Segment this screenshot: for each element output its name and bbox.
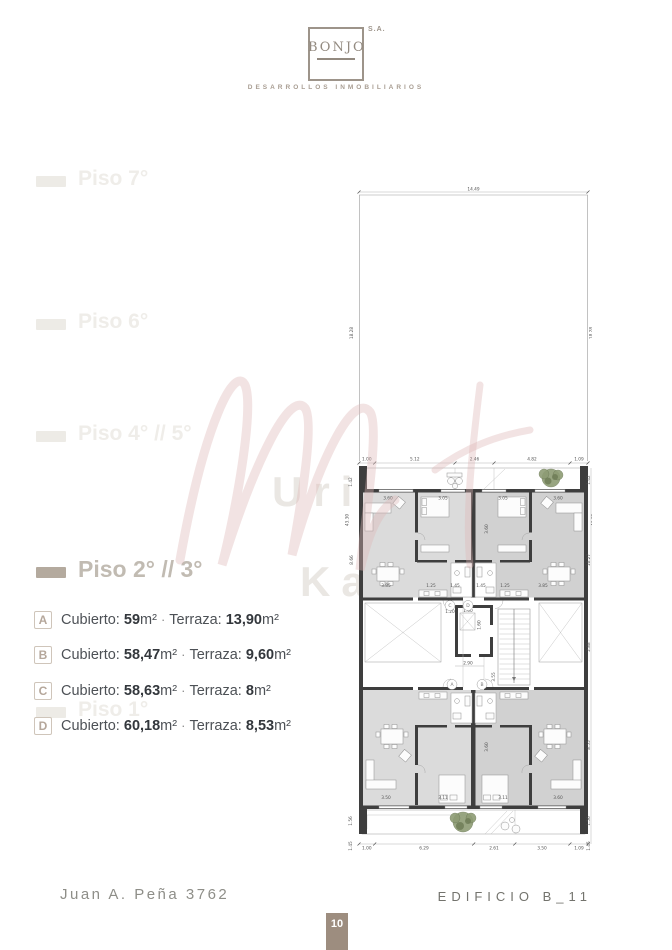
svg-text:3.60: 3.60 [484, 524, 490, 534]
unit-letter-badge: B [34, 646, 52, 664]
svg-text:1.25: 1.25 [500, 583, 510, 589]
unit-areas: Cubierto: 58,63m²·Terraza: 8m² [61, 683, 271, 699]
svg-text:3.50: 3.50 [537, 846, 547, 852]
logo-tagline: DESARROLLOS INMOBILIARIOS [0, 84, 672, 91]
svg-text:1.45: 1.45 [450, 583, 460, 589]
svg-text:1.00: 1.00 [362, 846, 372, 852]
svg-text:1.56: 1.56 [586, 816, 592, 826]
footer-address: Juan A. Peña 3762 [60, 886, 229, 903]
unit-row-d: D Cubierto: 60,18m²·Terraza: 8,53m² [34, 709, 291, 745]
svg-text:1.42: 1.42 [348, 477, 354, 487]
svg-text:43.30: 43.30 [345, 514, 351, 527]
svg-text:1.56: 1.56 [348, 816, 354, 826]
svg-text:1.09: 1.09 [574, 846, 584, 852]
logo-name: BONJO [308, 40, 364, 55]
svg-text:3.05: 3.05 [438, 496, 448, 502]
svg-text:18.28: 18.28 [589, 327, 593, 340]
svg-text:3.11: 3.11 [498, 795, 508, 801]
floor-bar-icon [36, 176, 66, 187]
floor-label: Piso 7° [78, 167, 148, 191]
svg-text:1.45: 1.45 [476, 583, 486, 589]
svg-text:2.46: 2.46 [470, 457, 480, 463]
svg-text:3.60: 3.60 [383, 496, 393, 502]
svg-text:1.60: 1.60 [477, 620, 483, 630]
svg-text:6.29: 6.29 [419, 846, 429, 852]
svg-text:2.88: 2.88 [586, 642, 592, 652]
unit-letter-badge: D [34, 717, 52, 735]
svg-text:4.82: 4.82 [527, 457, 537, 463]
svg-text:1.45: 1.45 [586, 841, 592, 851]
floor-bar-icon [36, 567, 66, 578]
svg-text:3.60: 3.60 [484, 742, 490, 752]
svg-text:10.27: 10.27 [586, 554, 592, 567]
unit-row-c: C Cubierto: 58,63m²·Terraza: 8m² [34, 673, 291, 709]
svg-text:3.55: 3.55 [491, 672, 497, 682]
unit-letter-badge: C [34, 682, 52, 700]
svg-text:8.55: 8.55 [586, 740, 592, 750]
unit-areas: Cubierto: 59m²·Terraza: 13,90m² [61, 612, 279, 628]
floor-label: Piso 6° [78, 310, 148, 334]
floor-label: Piso 2° // 3° [78, 556, 203, 583]
floor-plan-drawing: 14.49 18.28 18.28 1.00 5.12 2.46 4.82 1.… [345, 185, 592, 865]
svg-text:1.09: 1.09 [574, 457, 584, 463]
floor-bar-icon [36, 319, 66, 330]
svg-text:3.60: 3.60 [553, 795, 563, 801]
svg-text:14.49: 14.49 [467, 187, 480, 193]
svg-text:2.61: 2.61 [489, 846, 499, 852]
page: S.A. BONJO DESARROLLOS INMOBILIARIOS Uri… [0, 0, 672, 950]
svg-text:3.50: 3.50 [381, 795, 391, 801]
unit-letter-badge: A [34, 611, 52, 629]
logo-underline [317, 58, 355, 60]
svg-text:B: B [480, 682, 483, 688]
svg-text:3.05: 3.05 [498, 496, 508, 502]
svg-text:1.42: 1.42 [586, 475, 592, 485]
svg-text:3.85: 3.85 [381, 583, 391, 589]
svg-text:5.12: 5.12 [410, 457, 420, 463]
footer-building-label: EDIFICIO B_11 [438, 889, 592, 904]
svg-text:1.25: 1.25 [426, 583, 436, 589]
svg-text:3.11: 3.11 [438, 795, 448, 801]
page-number-tab: 10 [326, 913, 348, 950]
unit-areas: Cubierto: 58,47m²·Terraza: 9,60m² [61, 647, 291, 663]
unit-row-b: B Cubierto: 58,47m²·Terraza: 9,60m² [34, 638, 291, 674]
svg-text:3.85: 3.85 [538, 583, 548, 589]
svg-text:2.90: 2.90 [463, 661, 473, 667]
svg-text:D: D [466, 603, 470, 609]
svg-text:8.66: 8.66 [349, 555, 355, 565]
svg-text:C: C [448, 603, 451, 609]
floor-bar-icon [36, 431, 66, 442]
svg-text:18.28: 18.28 [349, 327, 355, 340]
floor-label: Piso 4° // 5° [78, 422, 192, 446]
unit-list: A Cubierto: 59m²·Terraza: 13,90m² B Cubi… [34, 602, 291, 744]
svg-text:1.00: 1.00 [362, 457, 372, 463]
unit-row-a: A Cubierto: 59m²·Terraza: 13,90m² [34, 602, 291, 638]
unit-areas: Cubierto: 60,18m²·Terraza: 8,53m² [61, 718, 291, 734]
logo-suffix: S.A. [368, 26, 386, 33]
svg-text:1.45: 1.45 [348, 841, 354, 851]
svg-text:43.30: 43.30 [591, 514, 593, 527]
svg-text:3.60: 3.60 [553, 496, 563, 502]
